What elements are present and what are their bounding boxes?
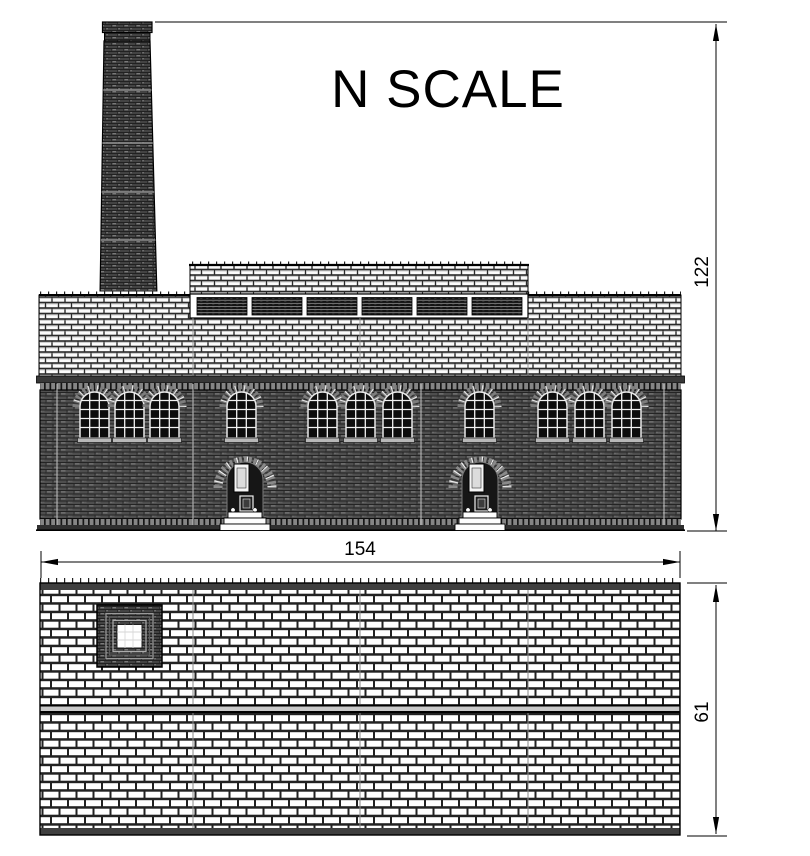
chimney-plan (97, 605, 162, 667)
drawing-page: 122 154 61 N SCALE (0, 0, 810, 856)
window-sill (381, 438, 415, 443)
clerestory (189, 262, 529, 319)
arrow-down-icon (713, 514, 719, 531)
windows (76, 389, 645, 443)
window-sill (610, 438, 644, 443)
window-sill (344, 438, 378, 443)
window-sill (536, 438, 570, 443)
height-dimension-label: 122 (692, 256, 713, 288)
arrow-up-icon (713, 585, 719, 602)
base-course (37, 525, 684, 530)
window-sill (78, 438, 112, 443)
door-steps (463, 512, 497, 518)
clerestory-louver-panel (417, 298, 467, 316)
roof-plan (40, 578, 680, 835)
window-sill (573, 438, 607, 443)
dimension-width: 154 (41, 539, 680, 578)
clerestory-louver-panel (197, 298, 247, 316)
window-sill (113, 438, 147, 443)
drawing-title: N SCALE (331, 60, 565, 119)
cornice (37, 376, 685, 383)
arrow-up-icon (713, 24, 719, 41)
clerestory-brick-band (190, 265, 528, 295)
plan-gutter-strip (40, 828, 680, 835)
arrow-right-icon (663, 559, 680, 565)
chimney (98, 22, 158, 297)
arrow-down-icon (713, 817, 719, 834)
clerestory-louver-panel (252, 298, 302, 316)
clerestory-louver-panel (472, 298, 522, 316)
window-sill (225, 438, 259, 443)
dimension-depth: 61 (687, 583, 727, 836)
window-sill (306, 438, 340, 443)
plan-top-strip (40, 583, 680, 590)
chimney-shaft (100, 41, 157, 297)
door-steps (228, 512, 262, 518)
model-kit-technical-drawing: 122 154 61 N SCALE (0, 0, 810, 856)
depth-dimension-label: 61 (692, 701, 713, 722)
arrow-left-icon (41, 559, 58, 565)
clerestory-louver-panel (362, 298, 412, 316)
chimney-cap (103, 22, 153, 33)
width-dimension-label: 154 (344, 539, 376, 560)
clerestory-louver-panel (307, 298, 357, 316)
chimney-cap-lower (105, 33, 151, 42)
window-sill (463, 438, 497, 443)
window-sill (148, 438, 182, 443)
chimney-plan-flue (117, 625, 142, 649)
plinth-course (40, 519, 681, 525)
plan-top-ticks (40, 578, 680, 583)
